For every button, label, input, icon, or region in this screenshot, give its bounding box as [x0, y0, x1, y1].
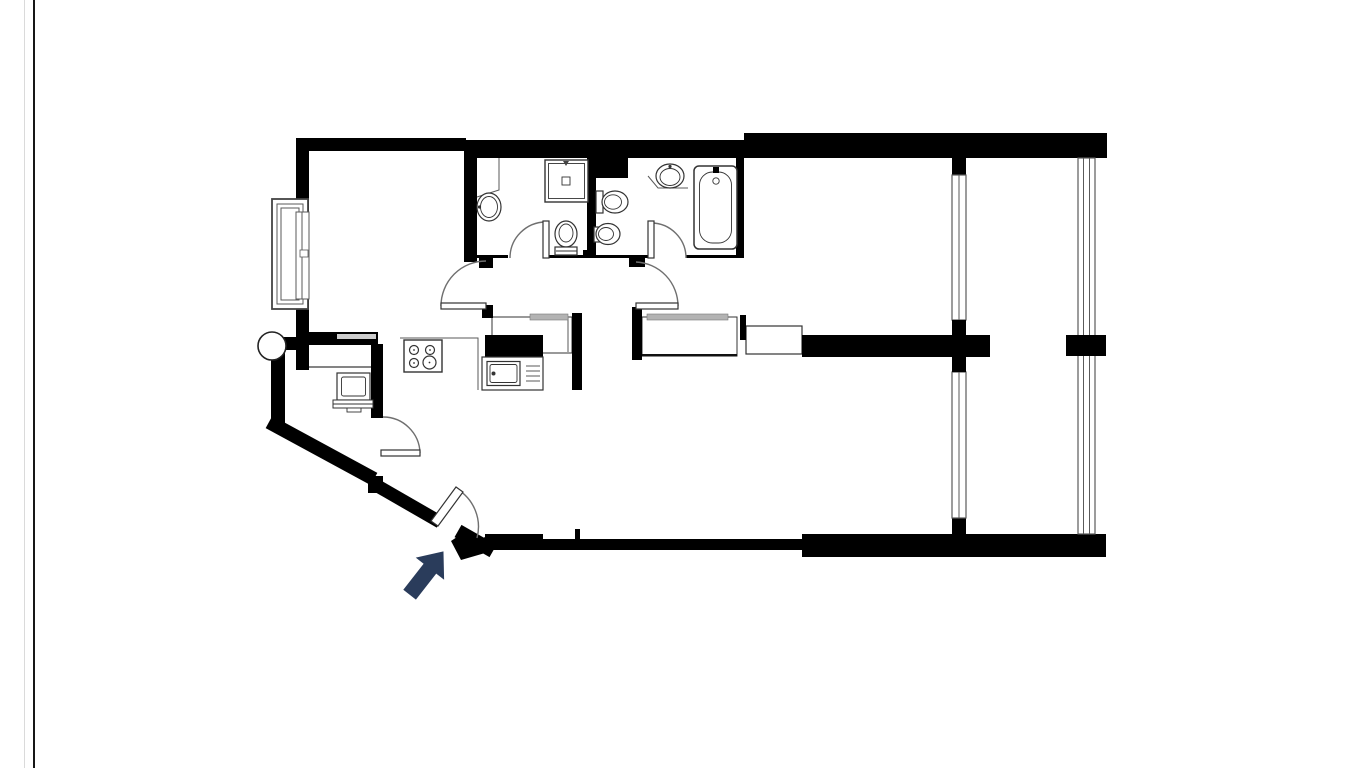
wall-segment	[572, 313, 582, 390]
door-leaf	[431, 487, 463, 526]
floor-plan	[0, 0, 1366, 768]
burner-dot	[413, 362, 415, 364]
tap	[668, 165, 671, 168]
wall-segment	[587, 158, 628, 178]
burner-dot	[429, 349, 431, 351]
thin-wall	[596, 255, 651, 258]
column-circle	[258, 332, 286, 360]
counter-edge	[477, 158, 499, 197]
wall-segment	[744, 133, 1107, 158]
washbasin	[656, 164, 684, 188]
wall-segment	[740, 315, 746, 340]
diagonal-wall	[374, 484, 440, 522]
stove	[404, 340, 442, 372]
interior-door	[636, 262, 678, 309]
burner-dot	[429, 362, 431, 364]
wall-segment	[802, 534, 1106, 557]
wall-segment	[952, 158, 966, 175]
wall-segment	[952, 320, 966, 372]
bathroom-1	[477, 158, 588, 255]
thin-wall	[477, 255, 508, 258]
kitchen-sink	[482, 357, 543, 390]
toilet	[596, 191, 628, 213]
door-arc	[651, 223, 686, 258]
bathtub	[694, 166, 737, 249]
wall-segment	[1066, 335, 1106, 356]
left-window	[272, 199, 309, 309]
kitchen-door	[381, 417, 420, 456]
toilet	[555, 221, 577, 255]
dresser	[746, 326, 802, 354]
tv-stand	[333, 373, 373, 412]
wall-opening-stripe	[337, 334, 376, 339]
door-leaf	[636, 303, 678, 309]
door-leaf	[543, 221, 549, 258]
bedroom-wardrobe	[642, 317, 737, 356]
wall-segment	[464, 155, 477, 262]
door-leaf	[381, 450, 420, 456]
wall-segment	[583, 250, 596, 258]
shower-tray	[545, 160, 588, 202]
stove-top	[404, 340, 442, 372]
wall-segment	[485, 335, 543, 357]
diagonal-wall	[269, 422, 374, 479]
sink-tap	[492, 372, 496, 376]
round-column	[258, 332, 286, 360]
tub-tap	[713, 167, 719, 173]
bidet	[594, 224, 620, 245]
bedroom-wardrobe-base	[642, 354, 737, 357]
door-arc	[636, 262, 678, 306]
entrance-arrow-icon	[395, 540, 457, 606]
wall-segment	[296, 138, 466, 151]
wall-segment	[575, 529, 580, 539]
washbasin	[477, 193, 501, 221]
tap	[478, 205, 481, 208]
wall-segment	[543, 539, 802, 550]
door-leaf	[441, 303, 486, 309]
door-arc	[383, 417, 420, 453]
door-arc	[510, 222, 546, 258]
interior-door	[441, 261, 486, 309]
wall-segment	[632, 307, 642, 360]
window-handle	[300, 250, 308, 257]
bowl	[602, 191, 628, 213]
entrance-arrow	[395, 540, 457, 606]
stand-leg	[347, 408, 361, 412]
burner-dot	[413, 349, 415, 351]
bathroom-door	[510, 221, 549, 258]
wall-segment	[464, 140, 744, 158]
entrance-door	[431, 487, 478, 538]
floor-plan-page	[0, 0, 1366, 768]
tub-outer	[694, 166, 737, 249]
tray-outer	[545, 160, 588, 202]
thin-wall	[686, 255, 737, 258]
door-leaf	[648, 221, 654, 258]
bedroom-wardrobe-shelf	[647, 314, 728, 320]
bathroom-door	[648, 221, 686, 258]
bowl	[555, 221, 577, 247]
bidet-bowl	[596, 224, 620, 245]
hall-wardrobe-shelf	[530, 314, 568, 320]
